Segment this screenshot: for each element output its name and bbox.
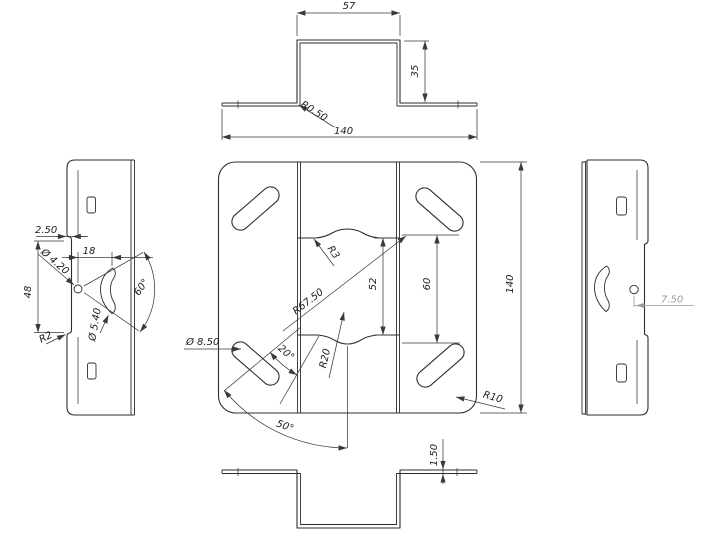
dim-label-18: 18 <box>83 246 96 257</box>
left-view-slot-bottom <box>88 363 97 379</box>
right-view-hole <box>630 285 638 293</box>
view-right-side: 7.50 <box>582 160 694 415</box>
dim-label-140-top: 140 <box>334 126 353 137</box>
dim-label-1-50: 1.50 <box>429 444 440 466</box>
left-view-slot-top <box>87 197 96 213</box>
dim-label-35: 35 <box>410 65 421 78</box>
dim-label-48: 48 <box>23 286 34 299</box>
left-view-arc-slot <box>101 268 116 314</box>
angle-50-arc <box>224 390 347 448</box>
angle-label-60: 60° <box>132 277 151 298</box>
radius-label-r10: R10 <box>482 390 504 406</box>
leader-r67-50 <box>283 236 406 331</box>
view-top-profile: 57 35 R0.50 140 <box>222 1 477 140</box>
dim-57-extensions <box>297 15 400 36</box>
fold-lines <box>298 162 400 413</box>
left-view-hole <box>74 285 82 293</box>
dim-label-57: 57 <box>343 1 356 12</box>
left-view-fold-lines <box>131 160 135 415</box>
bottom-profile-inner-line <box>222 474 477 525</box>
top-profile-outer-line <box>222 40 477 103</box>
upper-relief-edge <box>298 229 400 238</box>
slot-bottom-left <box>228 338 282 388</box>
lower-relief-edge <box>298 335 400 344</box>
view-bottom-profile: 1.50 <box>222 439 477 528</box>
radius-label-r3: R3 <box>325 244 342 261</box>
slot-bottom-right <box>413 340 467 390</box>
bottom-profile-outer-line <box>222 470 477 528</box>
dim-label-dia-5-40: Ø 5.40 <box>86 307 104 343</box>
bottom-flange-ticks <box>238 468 457 476</box>
dim-label-dia-8-50: Ø 8.50 <box>185 336 219 348</box>
radius-label-r20: R20 <box>318 348 333 370</box>
dim-label-2-50: 2.50 <box>35 225 57 236</box>
view-plan: 52 60 140 R3 R67.50 R20 Ø 8.50 20° 50° R… <box>184 162 527 448</box>
view-left-side: 2.50 48 Ø 4.20 18 Ø 5.40 60° R2 <box>23 160 155 415</box>
right-view-arc-slot <box>595 266 610 312</box>
left-view-outline <box>67 160 131 415</box>
cad-drawing: 57 35 R0.50 140 52 60 140 R3 R67.50 R2 <box>0 0 720 540</box>
slot-top-right <box>412 184 466 234</box>
right-view-slot-top <box>617 197 627 215</box>
dim-label-52: 52 <box>368 278 379 291</box>
leader-r20 <box>329 312 344 378</box>
dim-label-dia-4-20: Ø 4.20 <box>38 246 72 278</box>
dim-label-60: 60 <box>422 278 433 291</box>
dim-label-7-50: 7.50 <box>661 295 683 306</box>
drawing-sheet: 57 35 R0.50 140 52 60 140 R3 R67.50 R2 <box>0 0 720 540</box>
dim-140-right-extensions <box>480 162 527 413</box>
right-view-fold-lines <box>582 161 586 415</box>
right-view-outline <box>587 160 648 415</box>
radius-label-r0-50: R0.50 <box>298 99 329 124</box>
right-view-slot-bottom <box>617 364 627 382</box>
top-profile-inner-line <box>222 43 477 106</box>
dim-label-140-right: 140 <box>505 274 516 293</box>
slot-top-left <box>228 183 282 233</box>
